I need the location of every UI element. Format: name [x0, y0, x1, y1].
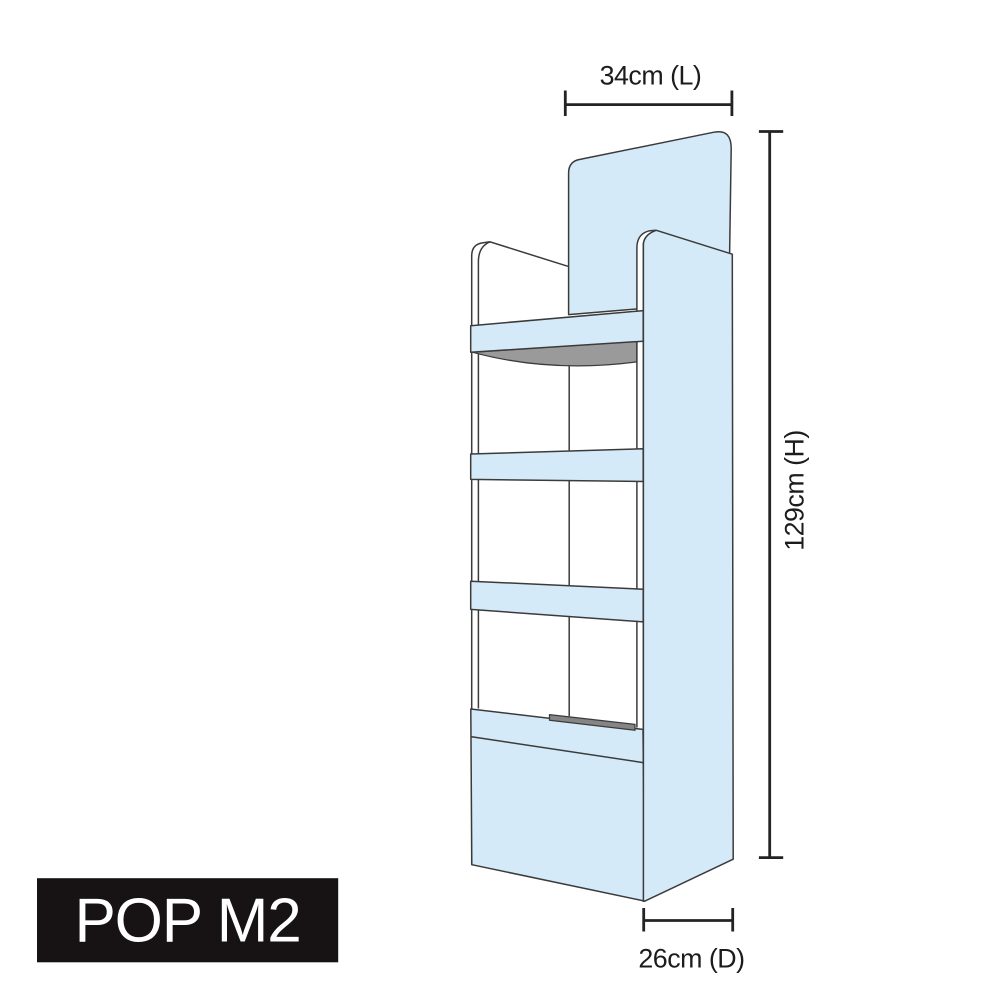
svg-text:34cm (L): 34cm (L): [600, 61, 702, 91]
svg-text:26cm (D): 26cm (D): [638, 943, 744, 973]
svg-text:POP M2: POP M2: [75, 887, 301, 956]
svg-text:129cm (H): 129cm (H): [780, 430, 810, 551]
